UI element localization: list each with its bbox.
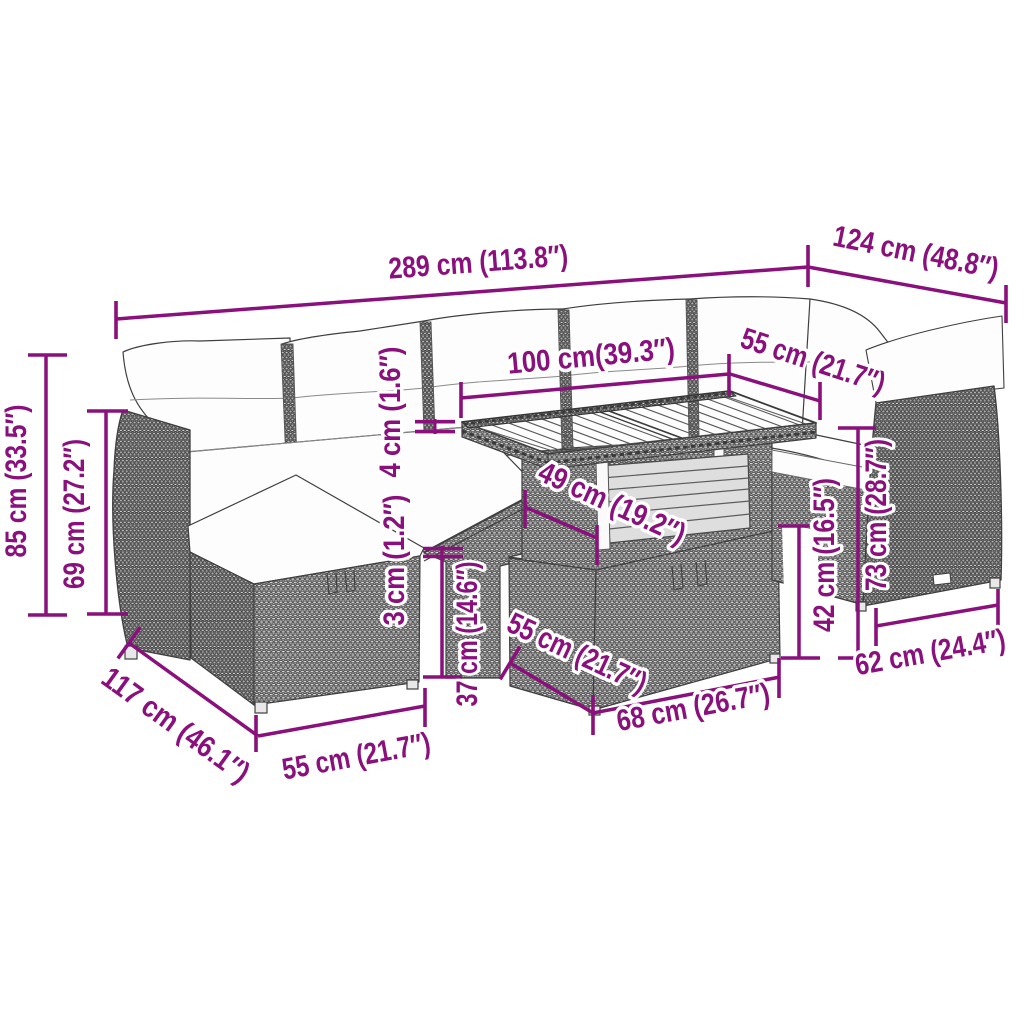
svg-text:73 cm (28.7″): 73 cm (28.7″) <box>860 439 893 591</box>
svg-text:3 cm (1.2″): 3 cm (1.2″) <box>378 495 411 626</box>
svg-text:69 cm (27.2″): 69 cm (27.2″) <box>58 439 91 589</box>
svg-text:4 cm (1.6″): 4 cm (1.6″) <box>374 347 407 478</box>
svg-text:42 cm (16.5″): 42 cm (16.5″) <box>808 478 841 632</box>
svg-text:85 cm (33.5″): 85 cm (33.5″) <box>0 405 33 558</box>
svg-text:37 cm (14.6″): 37 cm (14.6″) <box>451 562 484 707</box>
